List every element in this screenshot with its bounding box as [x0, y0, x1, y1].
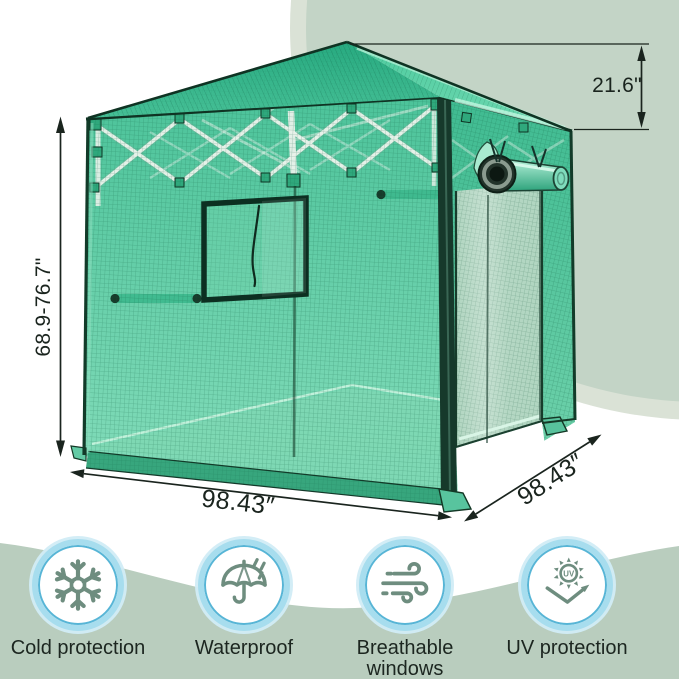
window [204, 198, 306, 300]
feature-cold-protection: Cold protection [0, 539, 163, 659]
wind-icon [359, 539, 451, 631]
uv-icon-text: UV [563, 569, 575, 578]
feature-label: Cold protection [11, 638, 146, 659]
uv-sun-icon: UV [521, 539, 613, 631]
height-dimension-arrow [56, 117, 65, 458]
height-dimension-label: 68.9-76.7" [32, 257, 56, 356]
greenhouse [71, 42, 575, 527]
umbrella-rain-icon [198, 539, 290, 631]
feature-label: Breathable windows [357, 638, 454, 679]
product-infographic: 68.9-76.7" 21.6" 98.43″ 98.43″ Cold prot… [0, 0, 679, 679]
feature-waterproof: Waterproof [159, 539, 329, 659]
feature-breathable-windows: Breathable windows [320, 539, 490, 679]
feature-label: UV protection [506, 638, 627, 659]
snowflake-icon [32, 539, 124, 631]
peak-dimension-label: 21.6" [592, 74, 642, 98]
feature-uv-protection: UV UV protection [482, 539, 652, 659]
feature-label: Waterproof [195, 638, 293, 659]
